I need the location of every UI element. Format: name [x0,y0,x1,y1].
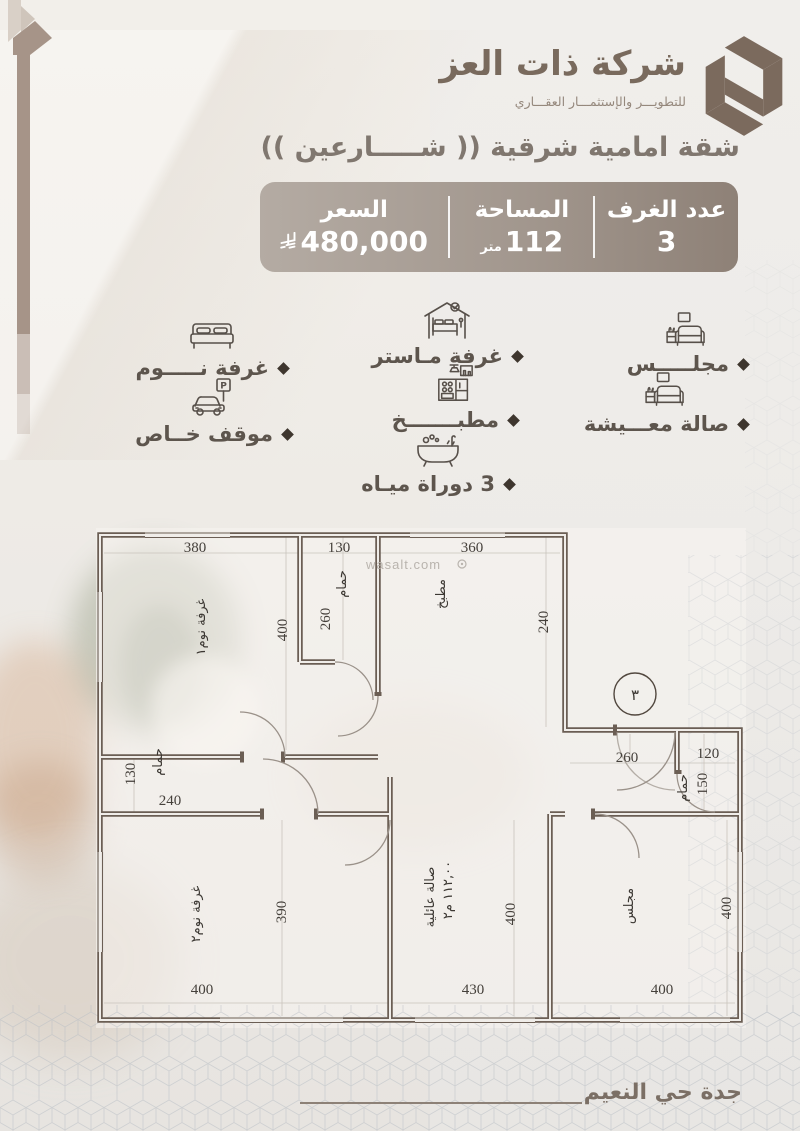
info-bar: السعر 480,000 المساحة 112 متر [260,182,738,272]
room-bath1: حمام [335,570,350,598]
company-name: شركة ذات العز [439,44,686,84]
feature-label: مطبـــــــخ [392,408,499,432]
feature-label: غرفة نـــــوم [135,356,269,380]
dim-bedroom1-width: 380 [184,540,207,556]
dim-bath1-height: 260 [318,608,334,631]
watermark: wasalt.com [365,557,441,572]
sofa-icon [643,372,689,408]
saudi-riyal-icon [280,232,297,251]
dim-bath2-width: 240 [159,793,182,809]
room-bath3: حمام [676,774,691,802]
feature-bedroom: غرفة نـــــوم [135,322,288,380]
room-kitchen: مطبخ [434,579,449,609]
rooms-cell: عدد الغرف 3 [595,182,738,272]
listing-title: شقة امامية شرقية (( شـــــارعين )) [260,132,740,163]
diamond-bullet-icon [277,362,290,375]
diamond-bullet-icon [511,350,524,363]
feature-parking: P موقف خــاص [135,378,292,446]
area-unit: متر [480,240,501,255]
area-value: 112 متر [480,225,563,258]
diamond-bullet-icon [507,414,520,427]
floor-plan: ٣ wasalt.com 380 130 360 400 260 حمام مط… [90,522,750,1037]
price-value: 480,000 [280,225,428,258]
master-bedroom-icon [422,300,472,340]
company-logo-icon [698,30,790,142]
feature-label: موقف خــاص [135,422,273,446]
dim-majlis-width: 400 [651,982,674,998]
sofa-icon [664,312,710,348]
room-bath2: حمام [151,748,166,776]
price-label: السعر [321,197,388,223]
feature-label: 3 دوراة ميـاه [361,472,495,496]
diamond-bullet-icon [737,418,750,431]
area-amount: 112 [505,225,563,258]
plan-labels: 380 130 360 400 260 حمام مطبخ 240 غرفة ن… [123,540,735,998]
price-cell: السعر 480,000 [260,182,448,272]
company-tagline: للتطويـــر والإستثمـــار العقـــاري [515,94,686,109]
room-bedroom2: غرفة نوم٢ [189,885,204,942]
dim-bath2-height: 130 [123,763,139,786]
feature-majlis: مجلـــــس [627,312,748,376]
room-majlis: مجلس [622,888,637,924]
room-family-hall: صالة عائلية [423,867,438,928]
bathtub-icon [414,432,462,468]
dim-bedroom2-height: 390 [274,901,290,924]
footer-location: جدة حي النعيم [584,1080,742,1105]
svg-text:P: P [220,382,227,392]
feature-label: صالة معـــيشة [584,412,729,436]
corner-ribbon-decoration [0,0,70,640]
dim-bath1-width: 130 [328,540,351,556]
dim-bedroom1-height: 400 [275,619,291,642]
dim-bedroom2-width: 400 [191,982,214,998]
feature-living-room: صالة معـــيشة [584,372,748,436]
dim-entry-width: 260 [616,750,639,766]
car-parking-icon: P [189,378,239,418]
diamond-bullet-icon [737,358,750,371]
diamond-bullet-icon [281,428,294,441]
feature-master-bedroom: غرفة مـاستر [371,300,522,368]
dim-kitchen-height: 240 [536,611,552,634]
unit-number: ٣ [631,686,639,704]
dim-majlis-height: 400 [719,897,735,920]
rooms-value: 3 [657,225,676,258]
dim-family-hall-width: 430 [462,982,485,998]
area-label: المساحة [475,197,570,223]
bed-icon [189,322,235,352]
room-bedroom1: غرفة نوم١ [194,598,209,655]
rooms-label: عدد الغرف [607,197,726,223]
kitchen-icon [433,364,477,404]
dim-kitchen-width: 360 [461,540,484,556]
flyer-page: شركة ذات العز للتطويـــر والإستثمـــار ا… [0,0,800,1131]
door-arcs [240,662,715,865]
diamond-bullet-icon [503,478,516,491]
feature-bathrooms: 3 دوراة ميـاه [361,432,514,496]
dim-family-hall-height: 400 [503,903,519,926]
feature-kitchen: مطبـــــــخ [392,364,518,432]
price-amount: 480,000 [300,225,428,258]
area-cell: المساحة 112 متر [450,182,593,272]
dim-bath3-height: 150 [695,773,711,796]
room-family-hall-area: ١١٢,٠٠ م٢ [441,861,456,919]
footer-divider-line [300,1102,582,1104]
dim-bath3-width: 120 [697,746,720,762]
